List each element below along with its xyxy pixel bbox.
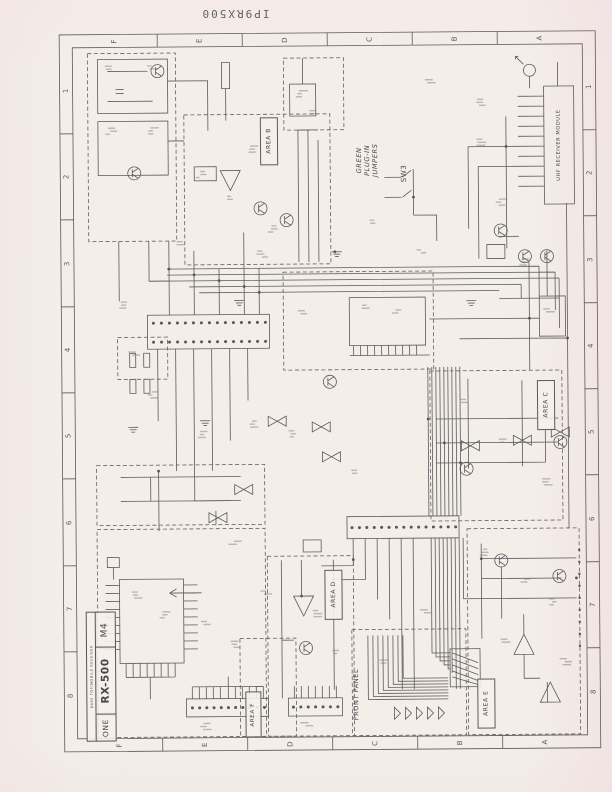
zone-number: 7	[63, 566, 77, 652]
title-block-sheet: ONE	[95, 713, 116, 741]
zone-number: 3	[584, 216, 598, 303]
zone-number: 8	[64, 652, 78, 739]
schematic-sheet: F E D C B A F E D C B A 1 2 3 4 5 6 7 8 …	[0, 0, 612, 792]
zone-letter: A	[503, 735, 588, 749]
zone-letter: A	[497, 31, 582, 45]
zone-number: 6	[586, 475, 600, 562]
title-block-model: RX-500	[95, 647, 117, 716]
zone-number: 8	[587, 648, 601, 735]
zone-letter: B	[412, 31, 497, 45]
title-block-rev: M4	[95, 612, 116, 649]
zone-number: 7	[586, 562, 600, 648]
zone-number: 6	[63, 479, 77, 566]
zone-letter: D	[242, 33, 327, 47]
zone-letter: F	[72, 34, 157, 48]
front-panel-label: FRONT PANEL	[351, 646, 364, 744]
connector-strips	[147, 313, 480, 718]
zone-number: 5	[585, 389, 599, 475]
zone-number: 3	[61, 220, 75, 307]
zone-letter: C	[333, 736, 418, 750]
zone-number: 4	[61, 307, 75, 393]
sw3-label: SW3	[398, 159, 410, 187]
area-c-label: AREA C	[537, 380, 555, 430]
zone-number: 2	[583, 130, 597, 216]
area-d-label: AREA D	[324, 570, 342, 620]
zone-letter: E	[157, 33, 242, 47]
area-b-label: AREA B	[260, 117, 278, 165]
zone-number: 1	[59, 48, 73, 134]
text-smudge-layer	[105, 62, 572, 731]
jumpers-note: GREEN PLUG-IN JUMPERS	[348, 125, 389, 195]
uhf-receiver-module-label: UHF RECEIVER MODULE	[546, 88, 573, 202]
pin-dot-layer	[151, 144, 582, 709]
zone-letter: B	[418, 735, 503, 749]
zone-letter: E	[163, 737, 248, 751]
scanned-schematic-page: IP9RX500	[0, 0, 612, 792]
area-e-label: AREA E	[477, 679, 495, 729]
zone-number: 5	[62, 393, 76, 479]
zone-number: 1	[582, 44, 596, 130]
area-f-label: AREA F	[245, 691, 261, 737]
zone-letter: D	[248, 737, 333, 751]
zone-number: 4	[584, 303, 598, 389]
zone-number: 2	[60, 134, 74, 220]
zone-letter: C	[327, 32, 412, 46]
